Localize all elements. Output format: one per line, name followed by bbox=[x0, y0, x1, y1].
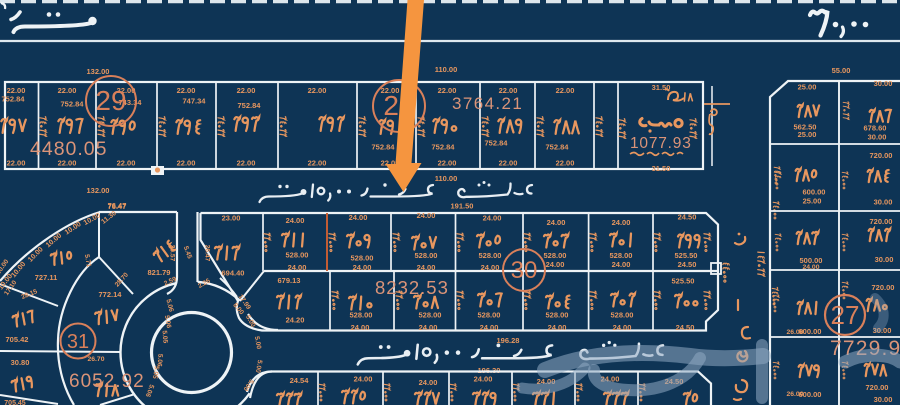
svg-text:528.00: 528.00 bbox=[350, 311, 373, 320]
svg-text:191.50: 191.50 bbox=[451, 202, 474, 211]
svg-text:31: 31 bbox=[67, 331, 89, 353]
svg-text:705.42: 705.42 bbox=[6, 335, 29, 344]
svg-text:752.84: 752.84 bbox=[485, 139, 509, 148]
svg-text:22.00: 22.00 bbox=[308, 86, 327, 95]
svg-text:24.00: 24.00 bbox=[547, 218, 566, 227]
svg-text:30.00: 30.00 bbox=[868, 133, 887, 142]
svg-text:22.00: 22.00 bbox=[438, 159, 457, 168]
svg-text:22.00: 22.00 bbox=[237, 86, 256, 95]
svg-text:24.00: 24.00 bbox=[417, 263, 436, 272]
svg-text:27: 27 bbox=[831, 300, 860, 330]
svg-text:24.00: 24.00 bbox=[286, 216, 305, 225]
svg-text:22.00: 22.00 bbox=[499, 159, 518, 168]
svg-text:720.00: 720.00 bbox=[866, 383, 889, 392]
svg-text:132.00: 132.00 bbox=[87, 67, 110, 76]
svg-text:24.50: 24.50 bbox=[676, 323, 695, 332]
svg-text:24.00: 24.00 bbox=[613, 323, 632, 332]
svg-text:24.00: 24.00 bbox=[474, 375, 493, 384]
svg-text:29: 29 bbox=[95, 85, 126, 116]
svg-text:720.00: 720.00 bbox=[872, 283, 895, 292]
svg-text:26.00: 26.00 bbox=[786, 329, 803, 336]
svg-text:747.34: 747.34 bbox=[183, 97, 207, 106]
svg-text:752.84: 752.84 bbox=[238, 101, 262, 110]
svg-text:25.00: 25.00 bbox=[803, 197, 822, 206]
svg-text:22.00: 22.00 bbox=[177, 86, 196, 95]
svg-text:1077.93: 1077.93 bbox=[630, 135, 692, 152]
svg-text:30.00: 30.00 bbox=[874, 395, 893, 404]
svg-text:705.45: 705.45 bbox=[4, 400, 26, 405]
svg-text:720.00: 720.00 bbox=[870, 151, 893, 160]
svg-text:528.00: 528.00 bbox=[286, 251, 309, 260]
svg-text:821.79: 821.79 bbox=[148, 268, 171, 277]
svg-text:24.00: 24.00 bbox=[354, 375, 373, 384]
svg-text:528.00: 528.00 bbox=[478, 311, 501, 320]
svg-text:528.00: 528.00 bbox=[351, 254, 374, 263]
svg-text:110.00: 110.00 bbox=[435, 174, 458, 183]
svg-text:24.00: 24.00 bbox=[481, 263, 500, 272]
svg-text:752.84: 752.84 bbox=[432, 143, 456, 152]
svg-text:4480.05: 4480.05 bbox=[30, 138, 108, 160]
svg-text:679.13: 679.13 bbox=[278, 276, 301, 285]
svg-text:29.57: 29.57 bbox=[169, 245, 176, 262]
svg-text:752.84: 752.84 bbox=[372, 143, 396, 152]
svg-text:22.00: 22.00 bbox=[237, 159, 256, 168]
svg-text:772.14: 772.14 bbox=[99, 290, 123, 299]
svg-text:24.00: 24.00 bbox=[802, 264, 819, 271]
svg-text:3764.21: 3764.21 bbox=[452, 94, 523, 113]
svg-text:720.00: 720.00 bbox=[870, 217, 893, 226]
svg-text:22.00: 22.00 bbox=[308, 159, 327, 168]
svg-text:25.00: 25.00 bbox=[798, 83, 817, 92]
svg-text:528.00: 528.00 bbox=[611, 311, 634, 320]
svg-text:24.00: 24.00 bbox=[612, 218, 631, 227]
svg-text:6052.92: 6052.92 bbox=[69, 371, 145, 392]
svg-text:525.50: 525.50 bbox=[672, 277, 695, 286]
svg-text:22.00: 22.00 bbox=[58, 86, 77, 95]
svg-text:30.00: 30.00 bbox=[875, 255, 894, 264]
svg-text:22.00: 22.00 bbox=[117, 159, 136, 168]
svg-text:528.00: 528.00 bbox=[419, 311, 442, 320]
svg-text:26.00: 26.00 bbox=[786, 391, 803, 398]
svg-text:23.00: 23.00 bbox=[222, 214, 241, 223]
svg-text:24.00: 24.00 bbox=[349, 213, 368, 222]
svg-text:30.00: 30.00 bbox=[874, 198, 893, 207]
svg-text:528.00: 528.00 bbox=[546, 311, 569, 320]
svg-text:22.00: 22.00 bbox=[556, 86, 575, 95]
svg-text:24.00: 24.00 bbox=[419, 378, 438, 387]
svg-text:528.00: 528.00 bbox=[610, 251, 633, 260]
svg-text:752.84: 752.84 bbox=[2, 95, 26, 104]
svg-text:24.20: 24.20 bbox=[286, 316, 305, 325]
svg-text:24.00: 24.00 bbox=[548, 323, 567, 332]
svg-text:528.00: 528.00 bbox=[479, 251, 502, 260]
svg-text:22.00: 22.00 bbox=[7, 159, 26, 168]
svg-text:694.40: 694.40 bbox=[222, 269, 245, 278]
svg-text:25.00: 25.00 bbox=[798, 130, 817, 139]
svg-text:24.00: 24.00 bbox=[480, 323, 499, 332]
svg-text:24.00: 24.00 bbox=[419, 323, 438, 332]
svg-text:22.00: 22.00 bbox=[177, 159, 196, 168]
svg-text:8232.53: 8232.53 bbox=[375, 277, 449, 298]
svg-text:24.00: 24.00 bbox=[612, 260, 631, 269]
svg-text:110.00: 110.00 bbox=[435, 65, 458, 74]
svg-text:24.00: 24.00 bbox=[353, 263, 372, 272]
svg-text:196.28: 196.28 bbox=[497, 336, 520, 345]
svg-text:600.00: 600.00 bbox=[803, 188, 826, 197]
svg-text:752.84: 752.84 bbox=[61, 100, 85, 109]
svg-text:30: 30 bbox=[511, 257, 538, 284]
svg-text:528.00: 528.00 bbox=[415, 251, 438, 260]
svg-text:30.00: 30.00 bbox=[874, 79, 893, 88]
svg-text:727.11: 727.11 bbox=[35, 273, 58, 282]
svg-text:24.00: 24.00 bbox=[351, 323, 370, 332]
svg-text:24.54: 24.54 bbox=[290, 376, 310, 385]
svg-text:24.50: 24.50 bbox=[678, 260, 697, 269]
svg-text:30.80: 30.80 bbox=[11, 358, 30, 367]
svg-text:31.50: 31.50 bbox=[652, 164, 671, 173]
svg-text:24.50: 24.50 bbox=[678, 213, 697, 222]
svg-text:22.00: 22.00 bbox=[556, 159, 575, 168]
svg-text:24.00: 24.00 bbox=[288, 263, 307, 272]
svg-text:752.84: 752.84 bbox=[546, 143, 570, 152]
svg-text:24.00: 24.00 bbox=[546, 260, 565, 269]
svg-text:26.70: 26.70 bbox=[87, 356, 104, 363]
svg-text:26.47: 26.47 bbox=[204, 245, 211, 262]
svg-text:525.50: 525.50 bbox=[675, 251, 698, 260]
svg-text:132.00: 132.00 bbox=[87, 186, 110, 195]
svg-text:528.00: 528.00 bbox=[544, 251, 567, 260]
svg-text:24.00: 24.00 bbox=[417, 211, 436, 220]
svg-text:55.00: 55.00 bbox=[832, 66, 851, 75]
svg-text:76.47: 76.47 bbox=[108, 201, 127, 210]
svg-text:5.05: 5.05 bbox=[160, 330, 168, 344]
svg-text:678.60: 678.60 bbox=[864, 124, 887, 133]
svg-text:24.00: 24.00 bbox=[483, 214, 502, 223]
